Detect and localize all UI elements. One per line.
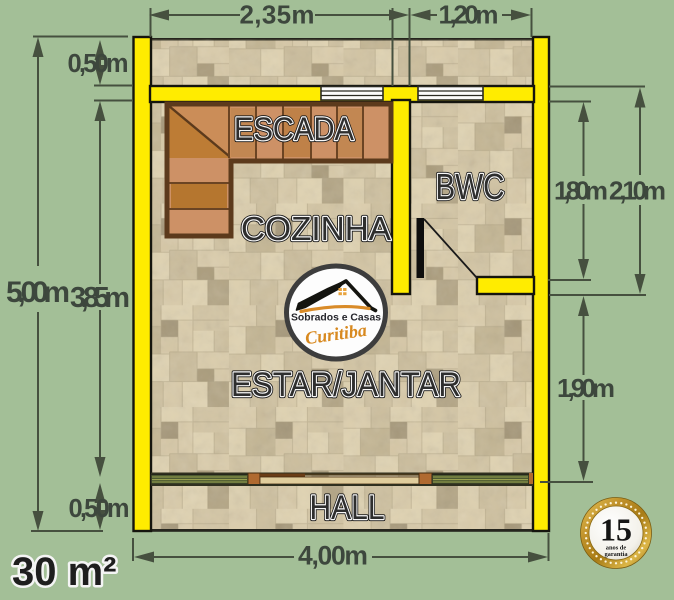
svg-text:ESTAR/JANTAR: ESTAR/JANTAR xyxy=(231,366,461,404)
svg-text:30 m²: 30 m² xyxy=(12,550,117,594)
svg-text:1,90m: 1,90m xyxy=(557,373,615,403)
svg-text:3,85m: 3,85m xyxy=(70,282,130,314)
svg-text:5,00m: 5,00m xyxy=(6,276,70,309)
svg-text:0,50m: 0,50m xyxy=(69,495,130,523)
svg-text:2,35m: 2,35m xyxy=(240,0,315,30)
svg-text:ESCADA: ESCADA xyxy=(234,111,355,147)
svg-text:Sobrados e Casas: Sobrados e Casas xyxy=(291,312,381,324)
svg-text:garantia: garantia xyxy=(604,551,628,558)
svg-text:0,50m: 0,50m xyxy=(68,50,129,78)
svg-text:COZINHA: COZINHA xyxy=(241,210,391,247)
svg-text:HALL: HALL xyxy=(310,489,385,527)
svg-text:1,20m: 1,20m xyxy=(439,0,499,30)
svg-text:1,80m: 1,80m xyxy=(554,176,608,206)
svg-text:BWC: BWC xyxy=(436,166,505,207)
svg-text:2,10m: 2,10m xyxy=(609,176,666,206)
svg-text:4,00m: 4,00m xyxy=(298,541,368,571)
svg-text:15: 15 xyxy=(600,512,632,548)
